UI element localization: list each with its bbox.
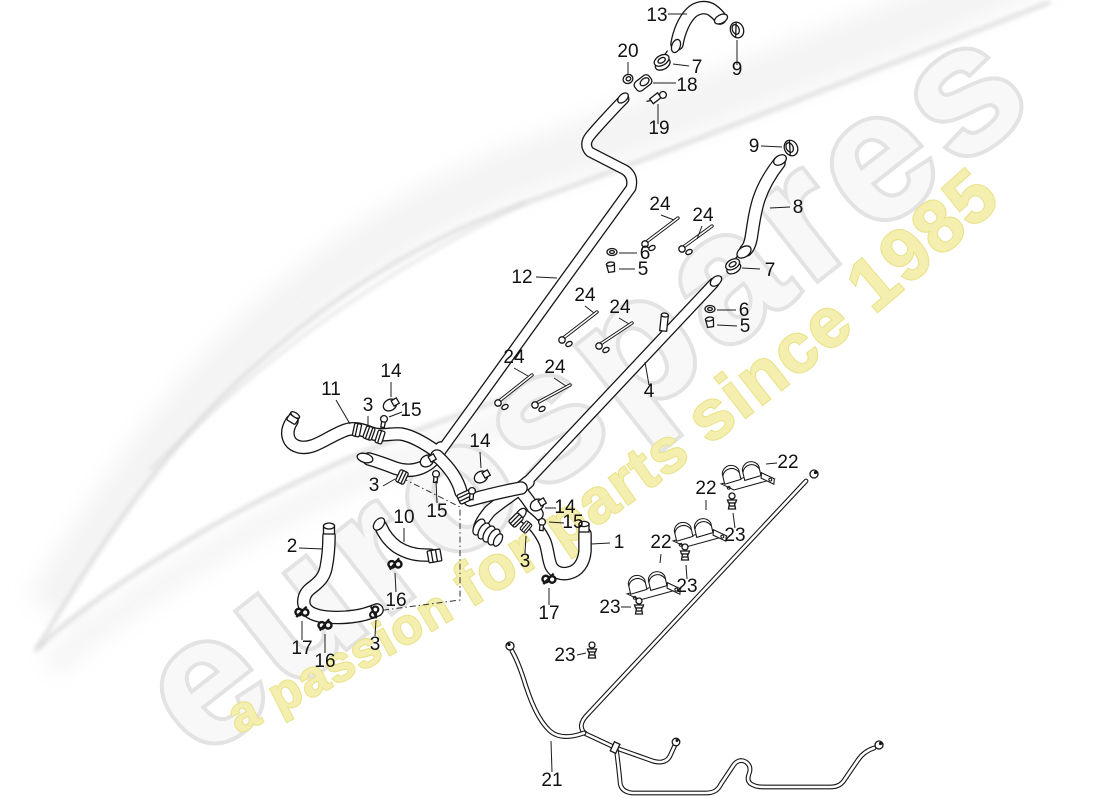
svg-text:12: 12 — [511, 267, 532, 288]
svg-text:2: 2 — [287, 536, 298, 557]
svg-text:24: 24 — [609, 297, 631, 318]
svg-text:13: 13 — [646, 5, 667, 26]
svg-text:23: 23 — [676, 576, 697, 597]
svg-text:24: 24 — [692, 205, 714, 226]
svg-text:24: 24 — [503, 347, 525, 368]
svg-text:8: 8 — [793, 197, 804, 218]
svg-text:4: 4 — [644, 381, 655, 402]
svg-text:19: 19 — [648, 118, 669, 139]
svg-text:22: 22 — [650, 532, 671, 553]
svg-text:15: 15 — [562, 512, 583, 533]
svg-text:15: 15 — [400, 400, 421, 421]
svg-text:3: 3 — [363, 395, 374, 416]
svg-text:15: 15 — [426, 501, 447, 522]
svg-text:21: 21 — [541, 770, 562, 791]
svg-text:7: 7 — [765, 260, 776, 281]
svg-text:9: 9 — [749, 136, 760, 157]
svg-text:18: 18 — [676, 75, 697, 96]
svg-text:24: 24 — [649, 194, 671, 215]
svg-text:24: 24 — [544, 357, 566, 378]
svg-text:1: 1 — [614, 532, 625, 553]
svg-text:11: 11 — [321, 379, 341, 400]
svg-text:14: 14 — [469, 431, 491, 452]
svg-text:3: 3 — [520, 551, 531, 572]
svg-text:3: 3 — [369, 475, 380, 496]
svg-text:22: 22 — [777, 452, 798, 473]
svg-text:16: 16 — [385, 590, 406, 611]
svg-text:20: 20 — [617, 41, 638, 62]
svg-text:5: 5 — [638, 259, 649, 280]
svg-text:16: 16 — [314, 651, 335, 672]
svg-text:22: 22 — [695, 478, 716, 499]
svg-text:14: 14 — [380, 361, 402, 382]
svg-text:3: 3 — [370, 634, 381, 655]
svg-text:17: 17 — [538, 603, 559, 624]
svg-text:10: 10 — [393, 507, 414, 528]
svg-text:23: 23 — [554, 645, 575, 666]
svg-text:23: 23 — [599, 597, 620, 618]
svg-text:5: 5 — [740, 316, 751, 337]
svg-text:17: 17 — [291, 638, 312, 659]
svg-text:23: 23 — [724, 525, 745, 546]
svg-text:9: 9 — [732, 59, 743, 80]
svg-text:24: 24 — [574, 285, 596, 306]
